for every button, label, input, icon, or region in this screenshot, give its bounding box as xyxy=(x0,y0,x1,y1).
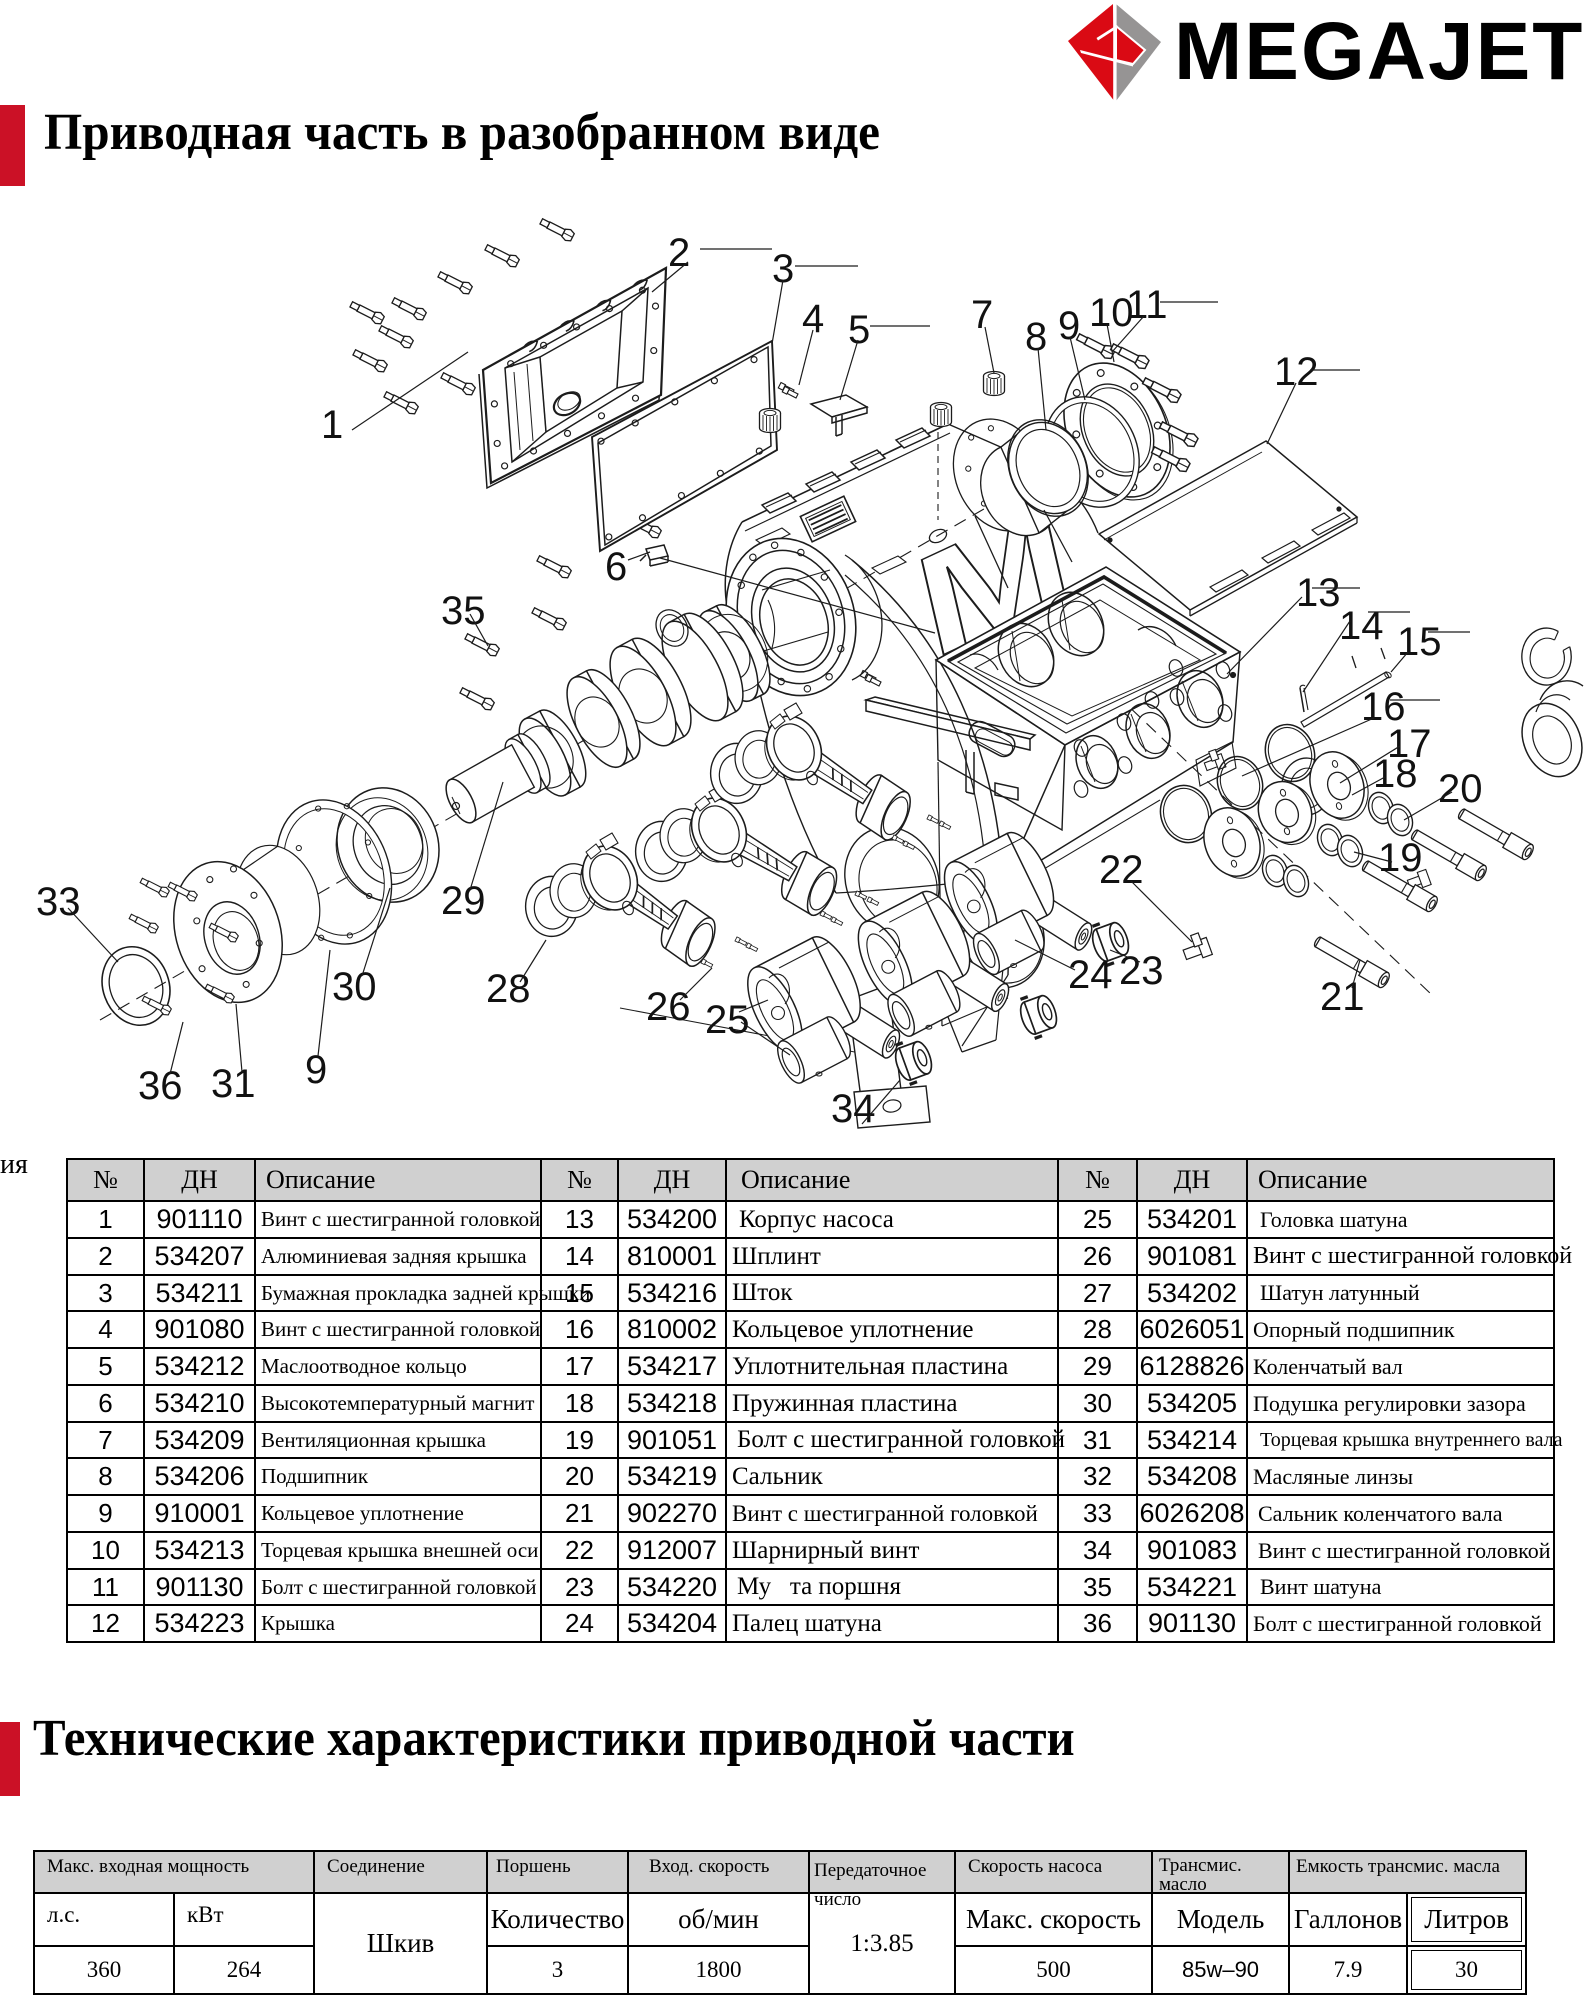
svg-text:21: 21 xyxy=(1320,975,1365,1019)
svg-text:19: 19 xyxy=(1378,836,1423,880)
svg-text:23: 23 xyxy=(1119,949,1164,993)
svg-text:14: 14 xyxy=(1339,604,1384,648)
svg-text:36: 36 xyxy=(138,1064,183,1108)
svg-text:9: 9 xyxy=(305,1048,327,1092)
svg-text:28: 28 xyxy=(486,967,531,1011)
svg-text:20: 20 xyxy=(1438,767,1483,811)
svg-text:31: 31 xyxy=(211,1062,256,1106)
svg-text:30: 30 xyxy=(332,965,377,1009)
svg-text:29: 29 xyxy=(441,879,486,923)
svg-text:1: 1 xyxy=(321,403,343,447)
svg-text:34: 34 xyxy=(831,1087,876,1131)
svg-text:26: 26 xyxy=(646,985,691,1029)
svg-text:22: 22 xyxy=(1099,848,1144,892)
svg-text:2: 2 xyxy=(668,231,690,275)
svg-text:6: 6 xyxy=(605,545,627,589)
svg-text:3: 3 xyxy=(772,247,794,291)
svg-text:11: 11 xyxy=(1126,283,1168,327)
svg-text:35: 35 xyxy=(441,589,486,633)
svg-text:7: 7 xyxy=(971,293,993,337)
svg-text:5: 5 xyxy=(848,308,870,352)
svg-text:8: 8 xyxy=(1025,315,1047,359)
svg-text:4: 4 xyxy=(802,297,824,341)
svg-text:24: 24 xyxy=(1068,953,1113,997)
svg-text:25: 25 xyxy=(705,998,750,1042)
svg-text:9: 9 xyxy=(1058,304,1080,348)
svg-text:13: 13 xyxy=(1296,571,1341,615)
svg-text:33: 33 xyxy=(36,880,81,924)
svg-text:12: 12 xyxy=(1274,350,1319,394)
